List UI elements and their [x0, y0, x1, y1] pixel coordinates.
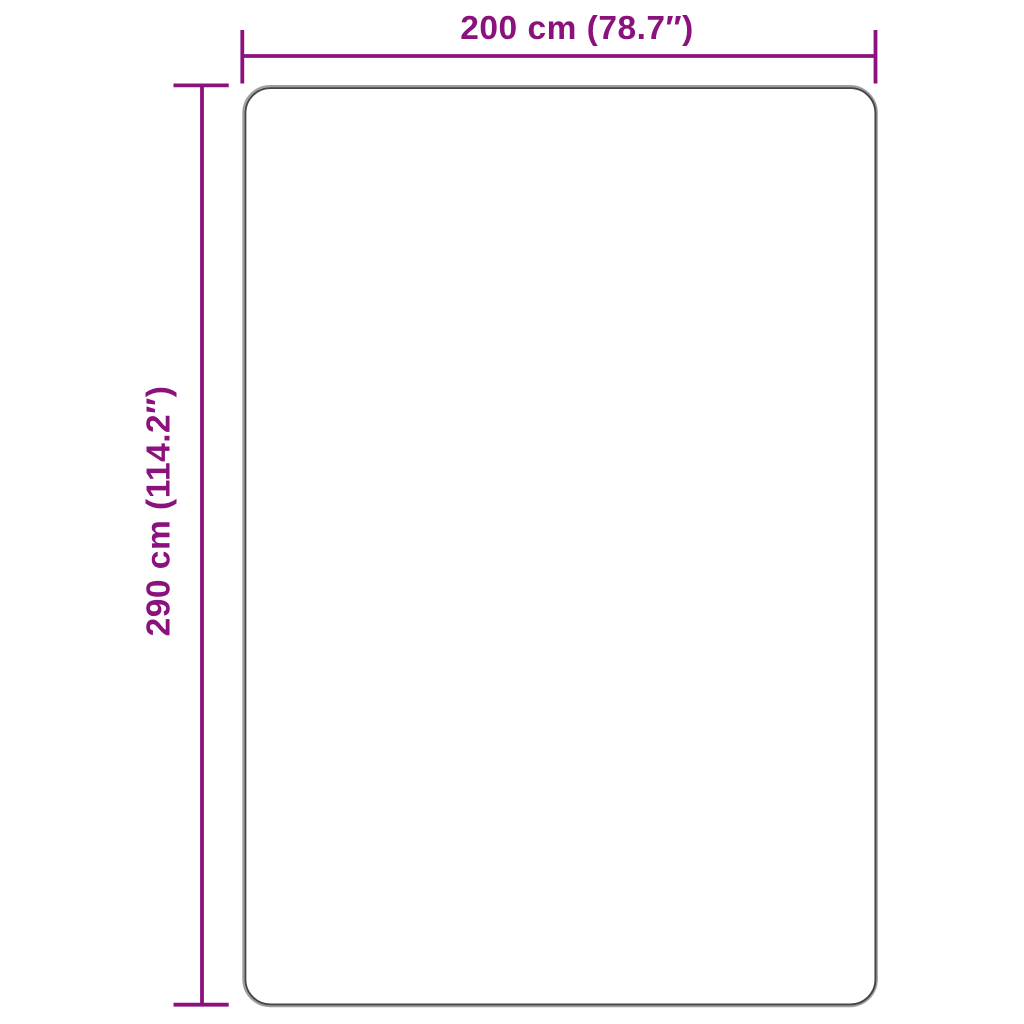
- svg-text:290 cm (114.2″): 290 cm (114.2″): [141, 386, 178, 637]
- svg-text:200 cm (78.7″): 200 cm (78.7″): [460, 10, 694, 47]
